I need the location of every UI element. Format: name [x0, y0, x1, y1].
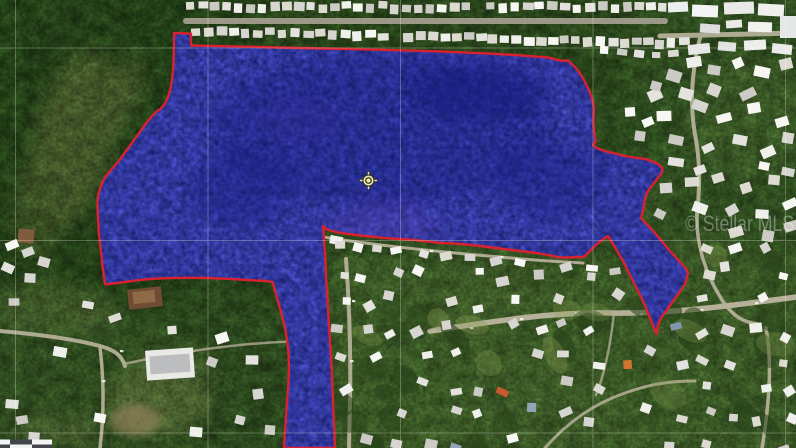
svg-text:© Stellar MLS: © Stellar MLS — [685, 211, 794, 236]
